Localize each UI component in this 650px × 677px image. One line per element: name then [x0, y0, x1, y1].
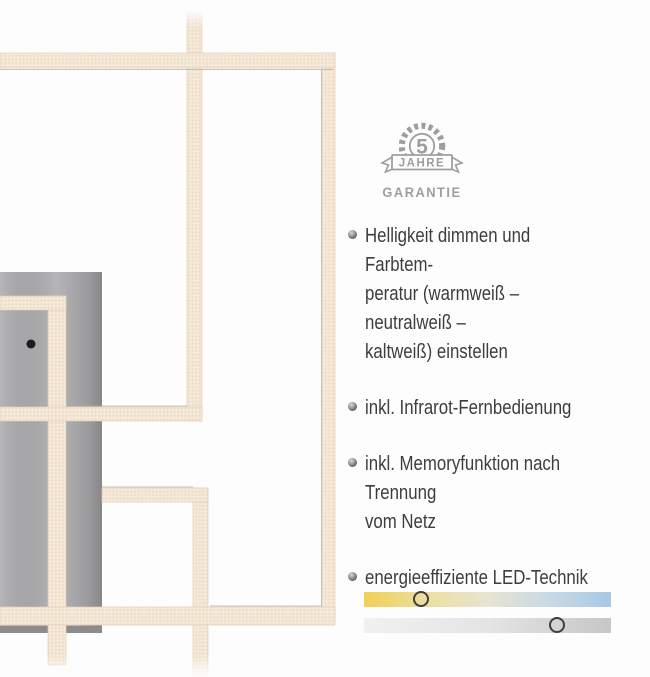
warranty-badge: 5 JAHRE GARANTIE [374, 120, 470, 200]
brightness-knob[interactable] [549, 617, 565, 633]
feature-text-dimming: Helligkeit dimmen und Farbtem- peratur (… [365, 222, 603, 367]
slider-group [364, 592, 611, 644]
frame-c-top-bar [0, 296, 66, 310]
frame-a-top-bar [0, 53, 335, 68]
frame-b-bottom-bar [0, 407, 202, 421]
brightness-track[interactable] [364, 618, 611, 633]
feature-text-led: energieeffiziente LED-Technik [365, 564, 603, 593]
list-item: inkl. Infrarot-Fernbedienung [348, 394, 648, 423]
top-bar-fade [184, 11, 205, 27]
color-temp-knob[interactable] [413, 591, 429, 607]
badge-banner: JAHRE [399, 158, 445, 170]
list-item: energieeffiziente LED-Technik [348, 564, 648, 593]
sensor-dot [27, 340, 36, 349]
bottom-fade [0, 655, 345, 677]
frame-a-bottom-bar [0, 607, 335, 625]
feature-text-remote: inkl. Infrarot-Fernbedienung [365, 394, 603, 423]
color-temp-track[interactable] [364, 592, 611, 607]
feature-text-memory: inkl. Memoryfunktion nach Trennung vom N… [365, 450, 603, 537]
frame-b-vertical-bar [187, 13, 202, 421]
color-temperature-slider[interactable] [364, 592, 611, 607]
frame-a-right-bar [322, 53, 335, 622]
frame-d-vertical-bar [193, 488, 208, 677]
warranty-label: GARANTIE [376, 185, 467, 200]
brightness-slider[interactable] [364, 618, 611, 633]
bullet-icon [348, 458, 357, 467]
bullet-icon [348, 230, 357, 239]
warranty-seal-icon: 5 JAHRE [380, 120, 464, 176]
list-item: inkl. Memoryfunktion nach Trennung vom N… [348, 450, 648, 537]
list-item: Helligkeit dimmen und Farbtem- peratur (… [348, 222, 648, 367]
bullet-icon [348, 572, 357, 581]
bullet-icon [348, 402, 357, 411]
product-photo-led-ceiling-lamp [0, 0, 345, 677]
frame-d-top-bar [102, 488, 208, 502]
feature-list: Helligkeit dimmen und Farbtem- peratur (… [348, 222, 648, 620]
